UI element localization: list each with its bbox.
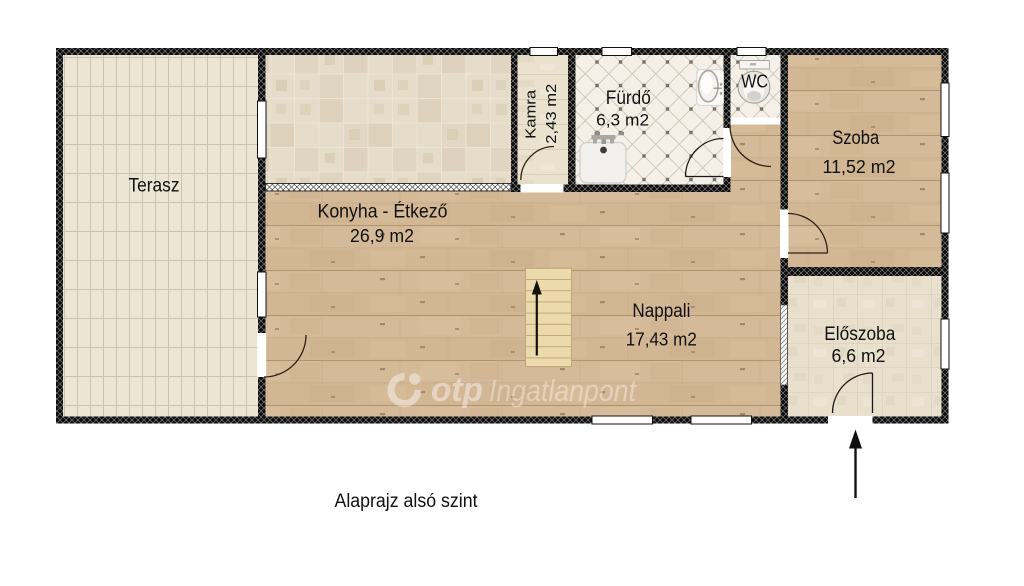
svg-text:otp: otp — [431, 371, 483, 409]
svg-text:26,9 m2: 26,9 m2 — [350, 226, 414, 246]
svg-text:Terasz: Terasz — [129, 175, 180, 196]
svg-text:11,52 m2: 11,52 m2 — [823, 157, 896, 177]
svg-text:Előszoba: Előszoba — [824, 324, 895, 345]
svg-text:WC: WC — [741, 72, 768, 92]
svg-text:Fürdő: Fürdő — [606, 88, 651, 109]
svg-text:17,43 m2: 17,43 m2 — [626, 329, 697, 349]
svg-text:6,6 m2: 6,6 m2 — [832, 346, 886, 366]
svg-text:Ingatlanpont: Ingatlanpont — [489, 373, 637, 408]
svg-text:Konyha - Étkező: Konyha - Étkező — [318, 201, 448, 222]
svg-text:Kamra: Kamra — [523, 89, 540, 139]
svg-text:Nappali: Nappali — [632, 301, 690, 322]
svg-text:2,43 m2: 2,43 m2 — [543, 84, 560, 144]
svg-text:Szoba: Szoba — [832, 128, 879, 149]
svg-text:Alaprajz alsó szint: Alaprajz alsó szint — [335, 491, 479, 512]
svg-text:6,3 m2: 6,3 m2 — [596, 111, 649, 130]
